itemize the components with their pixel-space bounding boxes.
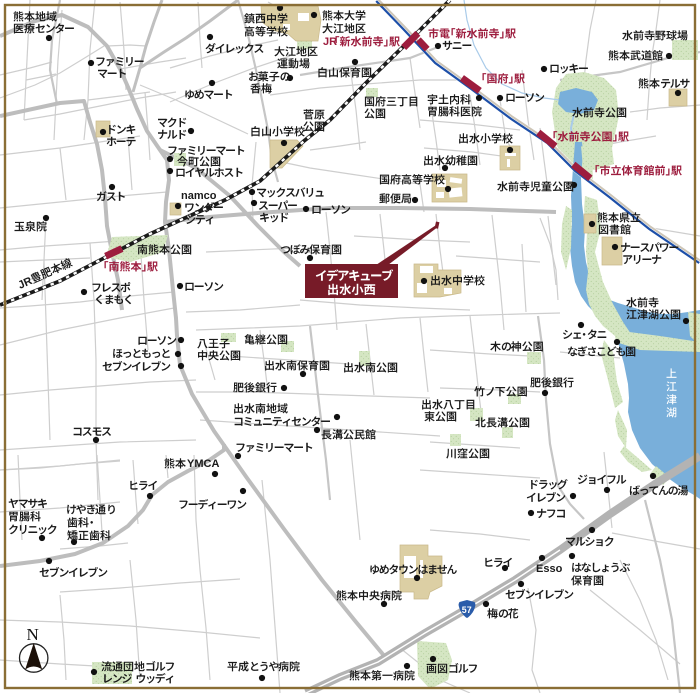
svg-text:YMCA: YMCA	[187, 458, 219, 470]
svg-text:N: N	[27, 625, 39, 644]
svg-text:57: 57	[462, 605, 472, 615]
svg-text:JR: JR	[323, 36, 337, 48]
svg-text:Esso: Esso	[536, 563, 563, 575]
svg-text:namco: namco	[181, 190, 217, 202]
